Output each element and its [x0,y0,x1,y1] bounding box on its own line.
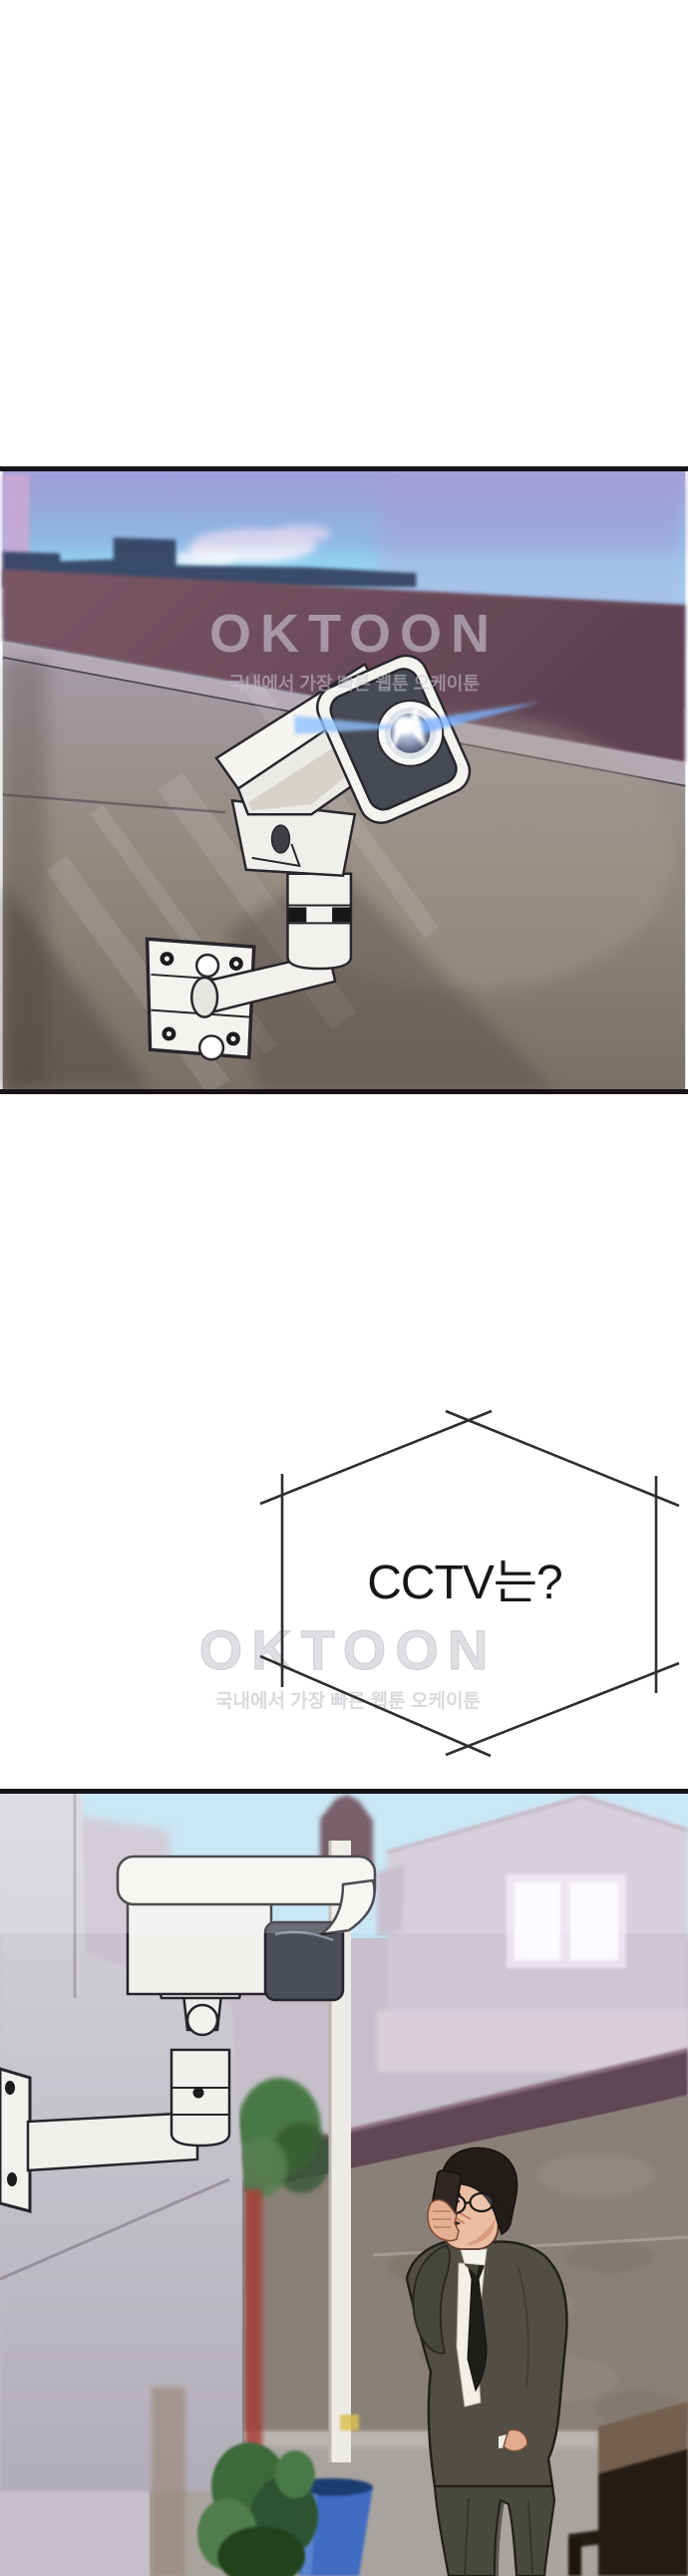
yellow-marker [340,2415,359,2431]
mount-cylinder [287,874,350,969]
panel-street-scene [0,1789,688,2576]
speech-bubble-text: CCTV는? [275,1557,654,1610]
mount-cylinder [172,2050,229,2146]
camera-joint [183,1994,221,2035]
trousers [435,2486,554,2576]
panel1-illustration [0,471,688,1089]
wall-mount-plate [0,2069,30,2211]
panel2-illustration [0,1794,688,2576]
panel-cctv-closeup: OKTOON 국내에서 가장 빠른 웹툰 오케이툰 [0,466,688,1094]
red-stripe [245,2189,262,2480]
webtoon-page: OKTOON 국내에서 가장 빠른 웹툰 오케이툰 OKTOON 국내에서 가장… [0,0,688,2576]
